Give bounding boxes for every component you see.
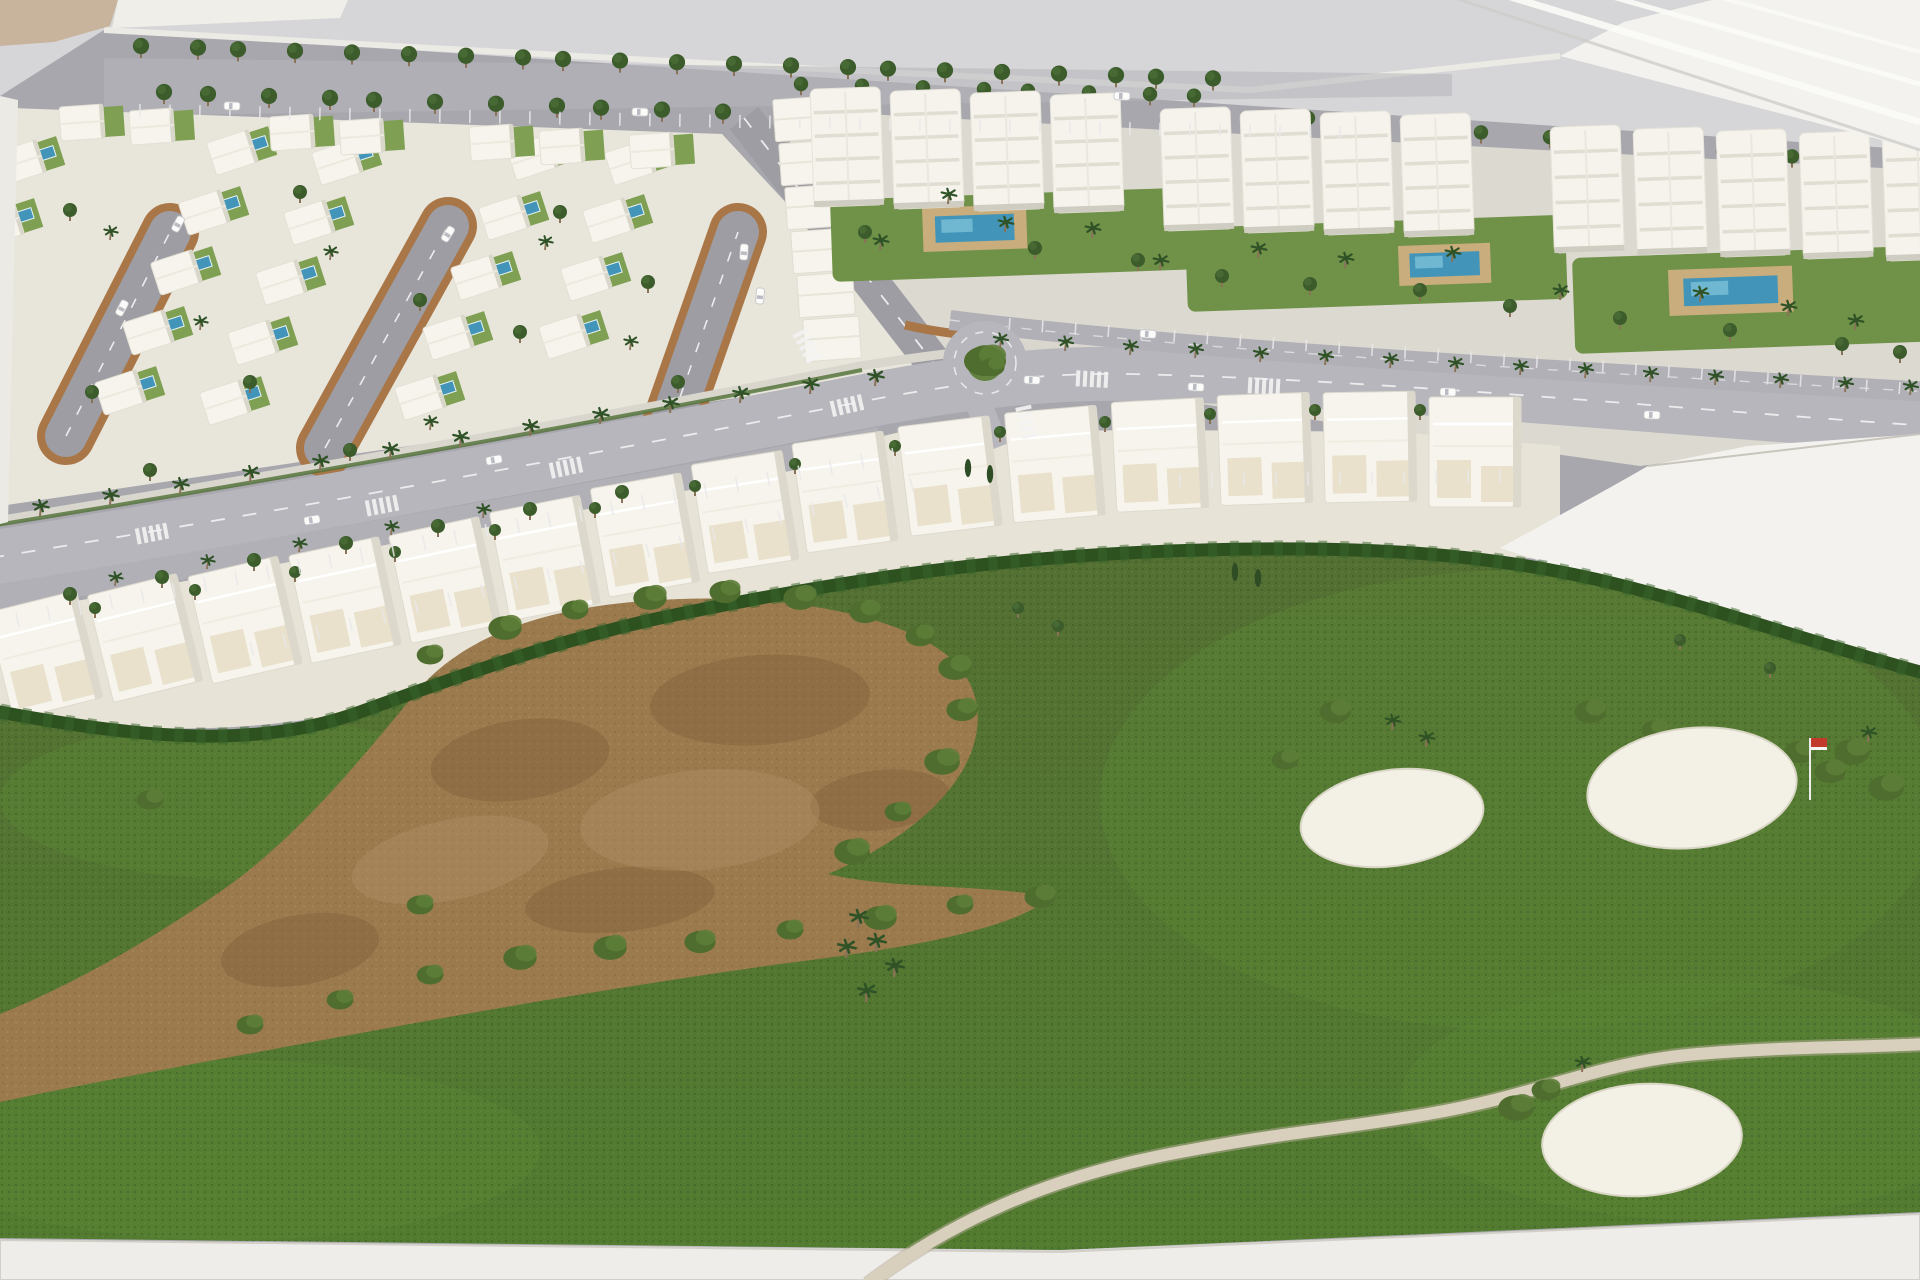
palm-crown [844,944,849,949]
palm-crown [947,192,951,196]
parking-stall-line [1635,363,1636,375]
tree-highlight [144,464,152,472]
shrub-top [1036,885,1056,901]
apartment-facade [1882,133,1920,261]
tree-highlight [367,93,376,102]
parking-stall-line [1833,377,1834,389]
tree-highlight [1504,300,1512,308]
model-car [1114,92,1130,101]
shrub-top [645,585,666,602]
shrub-top [958,698,978,714]
tree-highlight [402,47,411,56]
palm-crown [429,419,433,423]
tree-highlight [459,49,468,58]
palm-crown [298,541,302,545]
tree-highlight [524,503,532,511]
townhouse-terrace [1376,460,1411,497]
townhouse [691,450,799,573]
tree-highlight [489,97,498,106]
model-car [1140,330,1156,339]
parking-stall-line [1866,380,1867,392]
apartment-pool [1668,266,1794,316]
tree-highlight [516,50,525,59]
tree-highlight [90,603,97,610]
palm-crown [529,423,534,428]
townhouse [590,473,700,597]
tree-highlight [290,567,297,574]
apartment-building [1799,131,1873,259]
cypress-body [1232,563,1238,581]
tree-highlight [613,54,622,63]
villa [339,117,405,155]
parking-stall-line [1438,349,1439,361]
apartment-pool [1398,243,1491,286]
tree-highlight [248,554,256,562]
tree-highlight [288,44,297,53]
car-windshield [1119,93,1123,99]
tree-highlight [841,60,850,69]
tree-highlight [672,376,680,384]
townhouse-block [803,316,862,362]
tree-highlight [1029,242,1037,250]
townhouse-terrace [958,485,996,525]
shrub-top [416,895,433,908]
tree-highlight [201,87,210,96]
tree-highlight [727,57,736,66]
crosswalk-stripe [1083,371,1088,387]
palm-crown [864,988,869,993]
palm-crown [1004,220,1008,224]
tree-highlight [1053,621,1060,628]
shrub-top [571,600,588,613]
townhouse-terrace [1018,472,1055,513]
palm-crown [999,336,1003,340]
parking-stall-line [1306,339,1307,351]
parking-stall-line [1240,335,1241,347]
parking-stall-line [1767,373,1768,385]
photo-stage: Photograph of an architectural scale mod… [0,0,1920,1280]
crosswalk-stripe [1076,370,1081,386]
tree-highlight [231,42,240,51]
crosswalk-stripe [1248,377,1253,393]
tree-highlight [1206,72,1215,81]
townhouse-terrace [1062,474,1099,513]
tree-highlight [790,459,797,466]
shrub-top [1511,1094,1534,1112]
cypress-icon [1255,569,1261,587]
shrub-top [426,645,443,658]
shrub-top [515,945,536,962]
tree-highlight [191,41,200,50]
tree-highlight [1414,284,1422,292]
apartment-building [1716,129,1790,257]
tree-highlight [340,537,348,545]
car-windshield [1649,412,1653,418]
townhouse-terrace [913,484,951,526]
tree-highlight [616,486,624,494]
townhouse-terrace [1437,460,1471,498]
pool-highlight [941,219,973,233]
car-windshield [741,251,747,255]
parking-stall-line [1042,320,1043,332]
palm-crown [109,492,114,497]
palm-crown [1091,226,1095,230]
palm-crown [874,938,879,943]
tree-highlight [554,206,562,214]
car-windshield [229,103,233,109]
apartment-building [1550,125,1624,253]
palm-crown [1854,318,1858,322]
crosswalk-stripe [1276,379,1281,395]
tree-highlight [1144,88,1152,96]
model-car [1644,411,1660,420]
car-windshield [1145,331,1149,337]
tree-highlight [345,46,354,55]
shrub-top [246,1015,263,1028]
parking-stall-line [1108,325,1109,337]
tree-highlight [1310,405,1317,412]
model-car [739,244,748,261]
pool-highlight [1691,281,1729,296]
palm-crown [1909,383,1913,387]
palm-crown [249,469,254,474]
palm-crown [879,238,883,242]
tree-highlight [1013,603,1020,610]
parking-stall-line [1273,337,1274,349]
shrub-top [916,625,935,639]
shrub-top [937,748,960,766]
tree-highlight [690,481,697,488]
palm-crown [1451,250,1455,254]
shrub-top [1881,774,1904,792]
apartment-pool [922,204,1027,252]
tree-highlight [1132,254,1140,262]
tree-highlight [86,386,94,394]
parking-stall-line [1701,368,1702,380]
palm-crown [1259,350,1263,354]
villa [469,123,535,161]
townhouse-shade [1513,397,1521,507]
palm-crown [1584,366,1588,370]
palm-crown [1867,730,1871,734]
palm-crown [1454,360,1458,364]
townhouse [792,431,898,553]
apartment-building [1240,109,1314,233]
townhouse-terrace [1227,457,1262,496]
shrub-top [1586,700,1606,716]
townhouse [1217,392,1313,505]
parking-stall-line [1800,375,1801,387]
tree-highlight [655,103,664,112]
model-car [224,102,240,111]
tree-highlight [938,63,947,72]
parking-stall-line [1339,342,1340,354]
villa [629,131,695,169]
tree-highlight [978,83,986,91]
tree-highlight [856,80,864,88]
palm-crown [1519,363,1523,367]
tree-highlight [156,571,164,579]
palm-crown [1425,735,1429,739]
townhouse [1323,391,1417,503]
tree-highlight [670,55,679,64]
palm-crown [390,524,394,528]
palm-crown [39,503,44,508]
tree-highlight [344,444,352,452]
tree-highlight [294,186,302,194]
palm-crown [1779,376,1783,380]
tree-highlight [890,441,897,448]
parking-stall-line [1537,356,1538,368]
tree-highlight [995,65,1004,74]
parking-stall-line [1207,332,1208,344]
crosswalk-stripe [1269,378,1274,394]
shrub-top [336,990,353,1003]
tree-highlight [1109,68,1118,77]
palm-crown [389,446,394,451]
palm-crown [482,507,486,511]
tree-highlight [594,101,603,110]
palm-crown [1129,343,1133,347]
cypress-icon [965,459,971,477]
tree-highlight [1894,346,1902,354]
tree-highlight [1149,70,1158,79]
tree-highlight [432,520,440,528]
model-car [1440,388,1456,397]
townhouse-terrace [709,521,749,564]
palm-crown [1159,258,1163,262]
townhouse [1111,398,1209,513]
tree-highlight [1304,278,1312,286]
townhouse-terrace [1332,455,1367,494]
tree-highlight [244,376,252,384]
palm-crown [1649,370,1653,374]
car-windshield [637,109,641,115]
scale-model-photo: Photograph of an architectural scale mod… [0,0,1920,1280]
tree-highlight [414,294,422,302]
tree-highlight [1675,635,1682,642]
palm-crown [319,458,324,463]
palm-crown [329,249,333,253]
tree-highlight [64,588,72,596]
townhouse-terrace [808,500,847,542]
parking-stall-line [1372,344,1373,356]
tree-highlight [716,105,725,114]
palm-crown [1581,1060,1585,1064]
shrub-top [956,895,973,908]
tree-highlight [514,326,522,334]
villa [269,113,335,151]
townhouse [1429,397,1521,507]
flag-stripe [1811,747,1827,750]
palm-crown [856,914,861,919]
car-windshield [1029,377,1033,383]
shrub-top [426,965,443,978]
tree-highlight [556,52,565,61]
tree-highlight [1216,270,1224,278]
shrub-top [861,600,881,616]
tree-highlight [262,89,271,98]
villa [539,127,605,165]
tree-highlight [1188,90,1196,98]
tree-highlight [1052,67,1061,76]
crosswalk-stripe [1262,378,1267,394]
palm-crown [1324,353,1328,357]
car-windshield [1193,384,1197,390]
palm-crown [1194,346,1198,350]
tree-highlight [428,95,437,104]
apartment-building [810,87,884,207]
tree-highlight [1475,126,1483,134]
shrub-top [696,930,716,946]
parking-stall-line [1174,330,1175,342]
parking-stall-line [1668,365,1669,377]
tree-highlight [134,39,143,48]
townhouse-terrace [1167,467,1203,505]
shrub-top [786,920,803,933]
tree-highlight [859,226,867,234]
apartment-building [1160,107,1234,231]
shrub-top [721,580,741,596]
crosswalk-stripe [1255,378,1260,394]
palm-crown [1714,373,1718,377]
tree-highlight [1614,312,1622,320]
parking-stall-line [1009,318,1010,330]
tree-highlight [490,525,497,532]
shrub-top [847,838,870,856]
tree-highlight [1415,405,1422,412]
palm-crown [109,229,113,233]
townhouse-terrace [1122,463,1158,503]
shrub-top [1331,700,1351,716]
cypress-icon [1232,563,1238,581]
tree-highlight [1836,338,1844,346]
palm-crown [206,558,210,562]
palm-crown [199,319,203,323]
palm-crown [1257,246,1261,250]
balcony-line [1889,234,1920,236]
cypress-body [965,459,971,477]
tree-highlight [157,85,166,94]
tree-highlight [64,204,72,212]
shrub-top [1826,760,1846,776]
tree-highlight [1083,86,1091,94]
cypress-body [1255,569,1261,587]
apartment-building [1882,133,1920,261]
shrub-top [146,790,163,803]
palm-crown [892,963,897,968]
tree-highlight [1724,324,1732,332]
balcony-line [1886,158,1920,160]
parking-stall-line [1471,351,1472,363]
shrub-top [605,935,626,952]
townhouse [898,416,1003,536]
palm-crown [1391,718,1395,722]
townhouse-terrace [609,544,649,587]
tree-highlight [642,276,650,284]
tree-highlight [917,81,925,89]
tree-highlight [590,503,597,510]
palm-crown [1389,356,1393,360]
villa [59,103,125,141]
palm-crown [629,339,633,343]
shrub-top [1542,1079,1561,1093]
model-car [1188,383,1204,392]
shrub-top [875,905,896,922]
parking-stall-line [1734,370,1735,382]
model-car [755,288,764,305]
shrub-top [950,655,971,672]
parking-stall-line [1602,361,1603,373]
villa [129,107,195,145]
model-car [632,108,648,117]
cypress-body [987,465,993,483]
tree-highlight [1765,663,1772,670]
tree-highlight [1100,417,1107,424]
shrub-top [988,357,1004,370]
palm-crown [1699,290,1703,294]
balcony-line [1887,183,1920,185]
townhouse-step [1328,418,1412,419]
car-windshield [1445,389,1449,395]
shrub-top [500,615,521,632]
car-windshield [757,295,763,299]
palm-crown [1559,288,1563,292]
tree-highlight [323,91,332,100]
shrub-top [1847,738,1870,756]
palm-crown [1787,304,1791,308]
apartment-building [1633,127,1707,255]
apartment-building [1050,93,1124,213]
palm-crown [1064,339,1068,343]
shrub-top [795,585,816,602]
parking-stall-line [1075,323,1076,335]
balcony-line [1888,208,1920,210]
crosswalk-stripe [1097,371,1102,387]
tree-highlight [995,427,1002,434]
crosswalk-stripe [1104,372,1109,388]
tree-highlight [881,62,890,71]
crosswalk-stripe [1090,371,1095,387]
palm-crown [459,434,464,439]
tree-highlight [795,78,803,86]
apartment-building [1320,111,1394,235]
cypress-icon [987,465,993,483]
parking-stall-line [1504,354,1505,366]
apartment-building [1400,113,1474,237]
palm-crown [874,373,879,378]
palm-crown [1844,380,1848,384]
parking-stall-line [1405,346,1406,358]
townhouse-terrace [509,567,550,611]
palm-crown [179,481,184,486]
shrub-top [894,802,911,815]
parking-stall-line [1899,382,1900,394]
tree-highlight [784,59,793,68]
palm-crown [544,239,548,243]
tree-highlight [550,99,559,108]
parking-stall-line [1570,358,1571,370]
palm-crown [809,381,814,386]
palm-crown [1344,256,1348,260]
palm-crown [669,400,674,405]
palm-crown [739,390,744,395]
apartment-building [970,91,1044,211]
shrub-top [1281,750,1298,763]
palm-crown [599,411,604,416]
flag-icon [1811,738,1827,747]
tree-highlight [1205,409,1212,416]
